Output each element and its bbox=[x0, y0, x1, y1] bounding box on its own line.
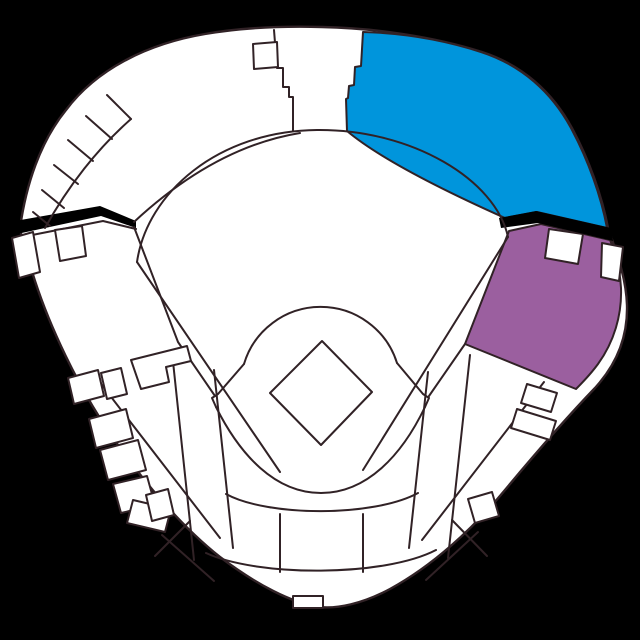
stadium-map bbox=[0, 0, 640, 640]
gate-block bbox=[468, 492, 499, 523]
gate-block bbox=[146, 489, 174, 521]
stadium-map-stage bbox=[0, 0, 640, 640]
gate-block bbox=[253, 42, 278, 69]
gate-block bbox=[293, 596, 323, 608]
gate-block bbox=[55, 226, 86, 261]
gate-notch bbox=[601, 243, 623, 281]
gate-notch bbox=[545, 229, 583, 264]
